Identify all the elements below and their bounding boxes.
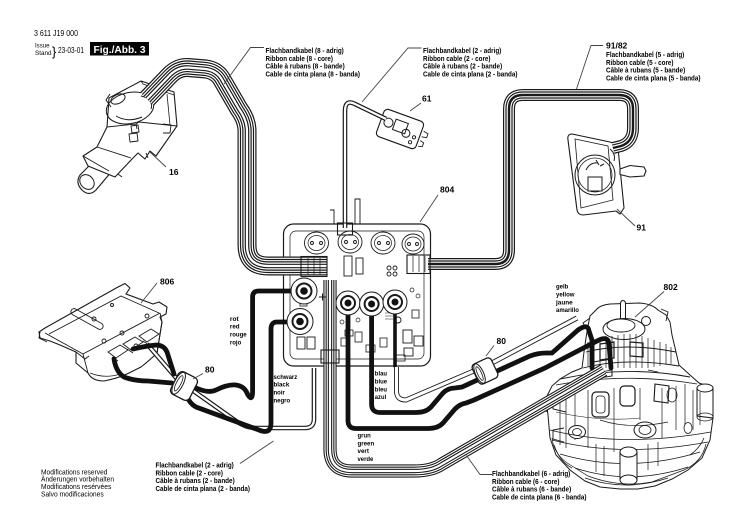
svg-text:80: 80 (205, 365, 215, 375)
svg-text:Issue: Issue (35, 43, 50, 50)
svg-text:Câble à rubans (8 - bande): Câble à rubans (8 - bande) (266, 64, 345, 71)
svg-text:Ribbon cable (6 - core): Ribbon cable (6 - core) (492, 479, 560, 486)
svg-text:Modifications reserved: Modifications reserved (41, 469, 108, 476)
svg-text:rouge: rouge (230, 332, 247, 339)
svg-text:Ribbon cable (5 - core): Ribbon cable (5 - core) (606, 60, 674, 67)
svg-text:Ribbon cable (2 - core): Ribbon cable (2 - core) (423, 56, 491, 63)
svg-text:yellow: yellow (556, 291, 575, 298)
svg-text:Cable de cinta plana (5 - band: Cable de cinta plana (5 - banda) (606, 75, 701, 82)
svg-text:blau: blau (375, 371, 387, 378)
svg-text:Cable de cinta plana (2 - band: Cable de cinta plana (2 - banda) (423, 71, 518, 78)
svg-text:Ribbon cable (8 - core): Ribbon cable (8 - core) (266, 56, 334, 63)
svg-text:3 611 J19 000: 3 611 J19 000 (34, 28, 78, 38)
svg-text:Câble à rubans (2 - bande): Câble à rubans (2 - bande) (156, 478, 235, 485)
svg-text:negro: negro (274, 398, 291, 405)
svg-text:black: black (274, 382, 290, 389)
svg-text:Fig./Abb. 3: Fig./Abb. 3 (94, 44, 146, 56)
svg-text:azul: azul (375, 394, 386, 401)
svg-text:Cable de cinta plana (8 - band: Cable de cinta plana (8 - banda) (266, 71, 361, 78)
svg-text:jaune: jaune (555, 299, 573, 306)
svg-text:Flachbandkabel (6 - adrig): Flachbandkabel (6 - adrig) (492, 471, 570, 478)
svg-text:Salvo modificaciones: Salvo modificaciones (41, 492, 104, 499)
svg-text:Ribbon cable (2 - core): Ribbon cable (2 - core) (156, 470, 224, 477)
svg-text:rojo: rojo (230, 340, 241, 347)
svg-text:verde: verde (358, 456, 374, 463)
svg-text:Modifications resérvées: Modifications resérvées (41, 484, 112, 491)
svg-text:806: 806 (160, 277, 174, 287)
svg-text:91/82: 91/82 (606, 41, 628, 51)
svg-text:61: 61 (422, 94, 432, 104)
svg-text:23-03-01: 23-03-01 (58, 46, 84, 55)
svg-text:Flachbandkabel (8 - adrig): Flachbandkabel (8 - adrig) (266, 48, 344, 55)
svg-text:bleu: bleu (375, 386, 387, 393)
svg-text:vert: vert (358, 448, 370, 455)
svg-text:Stand: Stand (35, 50, 52, 57)
svg-text:91: 91 (637, 223, 647, 233)
svg-text:Änderungen vorbehalten: Änderungen vorbehalten (41, 476, 114, 484)
svg-text:Flachbandkabel (2 - adrig): Flachbandkabel (2 - adrig) (156, 463, 234, 470)
svg-text:noir: noir (274, 390, 286, 397)
svg-text:Câble à rubans (5 - bande): Câble à rubans (5 - bande) (606, 68, 685, 75)
svg-text:Cable de cinta plana (6 - band: Cable de cinta plana (6 - banda) (492, 494, 587, 501)
svg-text:amarillo: amarillo (556, 307, 579, 314)
svg-text:Câble à rubans (6 - bande): Câble à rubans (6 - bande) (492, 487, 571, 494)
svg-text:schwarz: schwarz (274, 374, 298, 381)
svg-text:Flachbandkabel (2 - adrig): Flachbandkabel (2 - adrig) (423, 48, 501, 55)
svg-text:16: 16 (169, 167, 179, 177)
svg-text:804: 804 (440, 185, 454, 195)
svg-text:}: } (52, 44, 57, 59)
svg-text:80: 80 (497, 336, 507, 346)
svg-text:gelb: gelb (556, 284, 568, 291)
svg-text:802: 802 (664, 282, 678, 292)
svg-text:Câble à rubans (2 - bande): Câble à rubans (2 - bande) (423, 64, 502, 71)
svg-text:blue: blue (375, 378, 387, 385)
svg-text:rot: rot (230, 316, 240, 323)
svg-text:Flachbandkabel (5 - adrig): Flachbandkabel (5 - adrig) (606, 52, 684, 59)
svg-text:red: red (230, 324, 240, 331)
svg-text:grun: grun (358, 432, 371, 439)
svg-text:green: green (358, 440, 375, 447)
svg-text:Cable de cinta plana (2 - band: Cable de cinta plana (2 - banda) (156, 486, 251, 493)
